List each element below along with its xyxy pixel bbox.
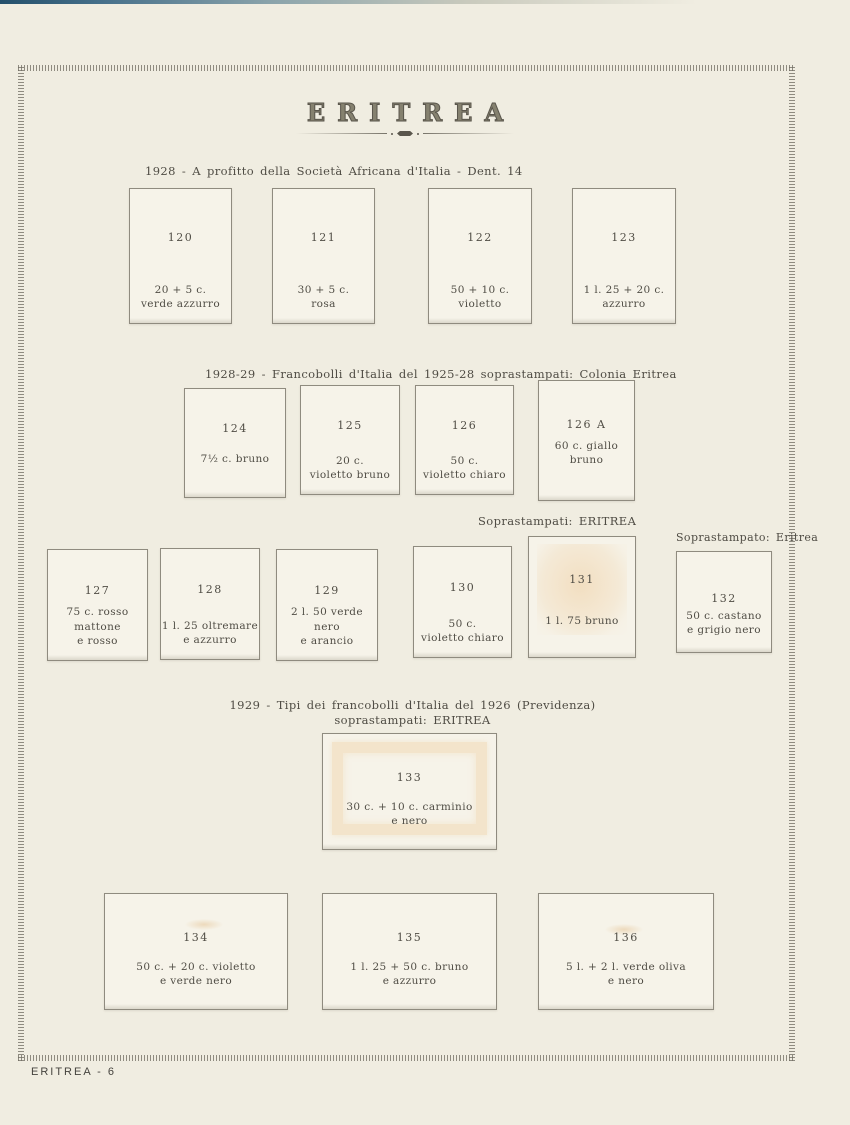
stamp-caption: 1 l. 75 bruno [529,614,635,629]
stamp-slot-135: 135 1 l. 25 + 50 c. bruno e azzurro [322,893,497,1010]
section-heading-1929: 1929 - Tipi dei francobolli d'Italia del… [0,698,825,728]
stamp-slot-127: 127 75 c. rosso mattone e rosso [47,549,148,661]
stamp-caption: 20 + 5 c. verde azzurro [130,283,231,312]
border-right [789,65,795,1061]
stamp-caption: 50 c. violetto chiaro [416,454,513,483]
stamp-caption: 7½ c. bruno [185,452,285,467]
stamp-slot-126: 126 50 c. violetto chiaro [415,385,514,495]
stamp-caption: 60 c. giallo bruno [539,439,634,468]
section-heading-1929-line1: 1929 - Tipi dei francobolli d'Italia del… [0,698,825,713]
stamp-number: 129 [277,584,377,597]
stamp-number: 121 [273,231,374,244]
stamp-caption: 50 c. + 20 c. violetto e verde nero [105,960,287,989]
page-footer-label: ERITREA - 6 [31,1066,116,1078]
divider-dot [417,133,419,135]
stamp-number: 130 [414,581,511,594]
stamp-number: 131 [529,573,635,586]
stamp-caption: 1 l. 25 + 50 c. bruno e azzurro [323,960,496,989]
stamp-slot-121: 121 30 + 5 c. rosa [272,188,375,324]
stamp-slot-131: 131 1 l. 75 bruno [528,536,636,658]
stamp-number: 123 [573,231,675,244]
stamp-slot-136: 136 5 l. + 2 l. verde oliva e nero [538,893,714,1010]
border-bottom [18,1055,795,1061]
stamp-caption: 1 l. 25 + 20 c. azzurro [573,283,675,312]
border-top [18,65,795,71]
section-heading-1928: 1928 - A profitto della Società Africana… [145,164,523,178]
title-divider [296,131,514,136]
stamp-number: 126 [416,419,513,432]
stamp-caption: 75 c. rosso mattone e rosso [48,605,147,649]
stamp-caption: 1 l. 25 oltremare e azzurro [161,619,259,648]
stamp-slot-126A: 126 A 60 c. giallo bruno [538,380,635,501]
title-block: ERITREA [0,98,810,136]
page-title: ERITREA [295,98,515,127]
stamp-number: 122 [429,231,531,244]
stamp-caption: 30 c. + 10 c. carminio e nero [323,800,496,829]
section-heading-soprastampati: Soprastampati: ERITREA [478,514,636,528]
stamp-slot-125: 125 20 c. violetto bruno [300,385,400,495]
stamp-slot-133: 133 30 c. + 10 c. carminio e nero [322,733,497,850]
stamp-slot-123: 123 1 l. 25 + 20 c. azzurro [572,188,676,324]
stamp-number: 120 [130,231,231,244]
stamp-slot-134: 134 50 c. + 20 c. violetto e verde nero [104,893,288,1010]
stamp-caption: 50 + 10 c. violetto [429,283,531,312]
stamp-number: 128 [161,583,259,596]
stamp-caption: 50 c. castano e grigio nero [677,609,771,638]
stamp-caption: 50 c. violetto chiaro [414,617,511,646]
divider-dot [391,133,393,135]
border-left [18,65,24,1061]
stamp-caption: 2 l. 50 verde nero e arancio [277,605,377,649]
scan-edge-artifact [0,0,850,4]
stamp-slot-132: 132 50 c. castano e grigio nero [676,551,772,653]
stamp-caption: 5 l. + 2 l. verde oliva e nero [539,960,713,989]
stamp-slot-128: 128 1 l. 25 oltremare e azzurro [160,548,260,660]
stamp-slot-129: 129 2 l. 50 verde nero e arancio [276,549,378,661]
stamp-number: 124 [185,422,285,435]
album-page: ERITREA 1928 - A profitto della Società … [0,0,850,1125]
stamp-caption: 20 c. violetto bruno [301,454,399,483]
stamp-number: 126 A [539,418,634,431]
stamp-number: 135 [323,931,496,944]
divider-diamond-ornament [397,131,413,136]
section-heading-1928-29: 1928-29 - Francobolli d'Italia del 1925-… [205,367,677,381]
stamp-slot-122: 122 50 + 10 c. violetto [428,188,532,324]
stamp-number: 132 [677,592,771,605]
divider-line-right [423,133,514,134]
section-heading-soprastampato: Soprastampato: Eritrea [676,531,818,544]
stamp-number: 125 [301,419,399,432]
stamp-number: 127 [48,584,147,597]
stamp-slot-120: 120 20 + 5 c. verde azzurro [129,188,232,324]
stamp-number: 134 [105,931,287,944]
stamp-slot-130: 130 50 c. violetto chiaro [413,546,512,658]
stamp-slot-124: 124 7½ c. bruno [184,388,286,498]
stamp-number: 133 [323,771,496,784]
section-heading-1929-line2: soprastampati: ERITREA [0,713,825,728]
stamp-caption: 30 + 5 c. rosa [273,283,374,312]
divider-line-left [296,133,387,134]
toning-spot [185,919,223,930]
stamp-number: 136 [539,931,713,944]
